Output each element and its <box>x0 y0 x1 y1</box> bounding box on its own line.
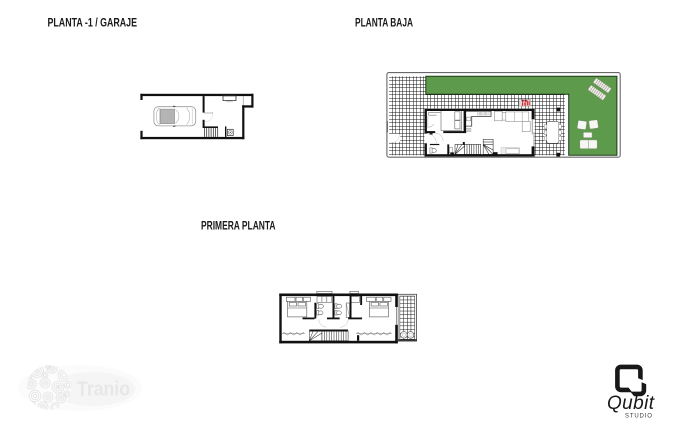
svg-text:PLANTA BAJA: PLANTA BAJA <box>355 16 413 30</box>
svg-text:Qubit: Qubit <box>607 393 655 414</box>
svg-text:PLANTA -1 / GARAJE: PLANTA -1 / GARAJE <box>48 16 138 30</box>
svg-text:Tranio: Tranio <box>77 378 130 401</box>
svg-text:STUDIO: STUDIO <box>625 414 653 420</box>
svg-text:PRIMERA PLANTA: PRIMERA PLANTA <box>201 219 276 233</box>
